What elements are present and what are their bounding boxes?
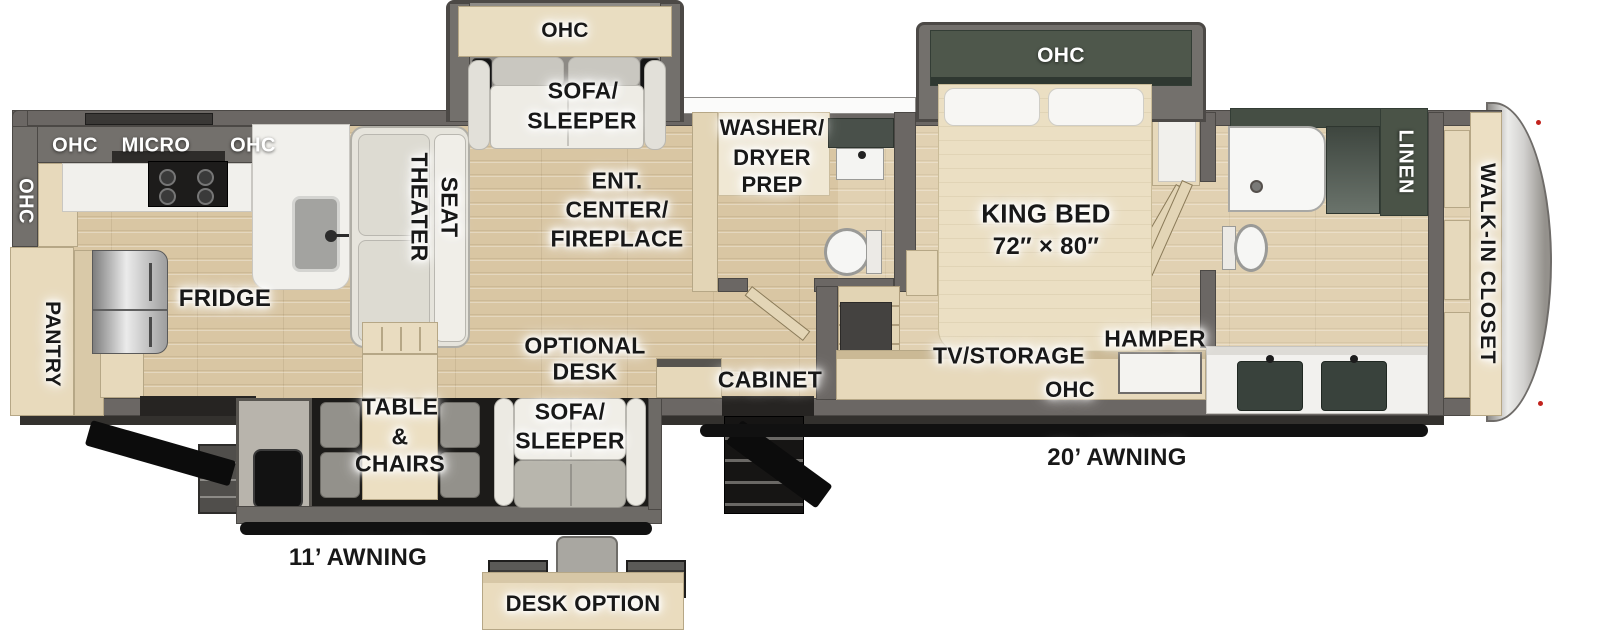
fridge-label: FRIDGE	[179, 285, 271, 313]
burner	[197, 188, 214, 205]
hutch-divider	[419, 327, 421, 351]
hamper	[1118, 352, 1202, 394]
living-sofa-label-line2: SLEEPER	[527, 108, 636, 135]
mid-toilet-tank	[866, 230, 882, 274]
burner	[197, 169, 214, 186]
bedroom-ohc-label: OHC	[1045, 377, 1095, 403]
sofa-armrest	[468, 60, 490, 150]
awning-11-bar	[240, 522, 652, 535]
bath-bottom-wall-left	[718, 278, 748, 292]
kitchen-ohc-right-label: OHC	[230, 135, 276, 158]
vanity-faucet	[1266, 355, 1274, 363]
sofa2-label-line2: SLEEPER	[515, 428, 624, 455]
closet-shelf	[1444, 130, 1470, 208]
sofa2-seat-divider	[570, 464, 572, 506]
dresser-top	[1158, 118, 1196, 182]
closet-shelf	[1444, 312, 1470, 398]
optional-desk-label-line1: OPTIONAL	[524, 333, 645, 360]
king-pillow	[1048, 88, 1144, 126]
bedroom-dresser	[1152, 112, 1200, 186]
kitchen-bottom-cabinet	[100, 352, 144, 398]
fridge-divider	[93, 309, 167, 311]
burner	[159, 188, 176, 205]
slide-window	[253, 449, 303, 509]
rear-ohc-label: OHC	[14, 178, 37, 224]
bath-faucet	[858, 151, 866, 159]
cooktop	[148, 161, 228, 207]
entry-cabinet	[656, 358, 722, 398]
living-sofa-label-line1: SOFA/	[548, 78, 619, 105]
bed-slide-ohc-label: OHC	[1037, 44, 1085, 68]
double-vanity	[1206, 346, 1428, 414]
vanity-top-lip	[1207, 347, 1427, 355]
desk-option-label: DESK OPTION	[506, 591, 661, 617]
kitchen-window	[85, 113, 213, 125]
cabinet-top-lip	[657, 359, 721, 367]
front-bath-wall-upper	[1200, 112, 1216, 182]
washer-dryer-label-line1: WASHER/	[720, 115, 825, 141]
tv-storage-label: TV/STORAGE	[933, 343, 1085, 370]
theater-backrest	[434, 134, 466, 342]
dinette-slide-endcap	[236, 398, 312, 512]
bath-left-cabinet	[692, 112, 718, 292]
desk-top-lip	[483, 573, 683, 583]
dinette-chair	[440, 402, 480, 448]
awning-20-label: 20’ AWNING	[1047, 444, 1186, 472]
ent-center-label-line1: ENT.	[591, 168, 642, 195]
kitchen-ohc-left-label: OHC	[52, 135, 98, 158]
king-pillow	[944, 88, 1040, 126]
nightstand	[906, 250, 938, 296]
hutch-divider	[400, 327, 402, 351]
sofa2-armrest	[494, 398, 514, 506]
shower-glass-panel	[1326, 126, 1380, 214]
marker-light-bottom	[1538, 401, 1543, 406]
shower-drain	[1250, 180, 1263, 193]
king-bed-label-line1: KING BED	[981, 199, 1111, 230]
drawer-top	[628, 562, 684, 570]
washer-dryer-label-line3: PREP	[741, 172, 802, 198]
sofa2-armrest	[626, 398, 646, 506]
hamper-label: HAMPER	[1104, 326, 1205, 353]
mid-toilet-bowl	[824, 228, 870, 276]
awning-11-label: 11’ AWNING	[289, 544, 427, 572]
theater-seat-label-line2: SEAT	[436, 177, 463, 238]
linen-label: LINEN	[1394, 130, 1417, 195]
vanity-faucet	[1350, 355, 1358, 363]
rv-floorplan-diagram: OHC OHC MICRO OHC PANTRY FRIDGE THEATER …	[0, 0, 1600, 632]
closet-shelf	[1444, 220, 1470, 300]
hutch-shelf-line	[363, 353, 437, 355]
sofa-armrest	[644, 60, 666, 150]
cabinet-label: CABINET	[718, 367, 822, 394]
washer-dryer-label-line2: DRYER	[733, 145, 811, 171]
fridge-handle	[149, 317, 152, 347]
kitchen-micro-label: MICRO	[122, 135, 191, 158]
table-chairs-label-line1: TABLE	[362, 394, 438, 421]
shower-pan	[1228, 126, 1326, 212]
awning-20-bar	[700, 424, 1428, 437]
walk-in-closet-label: WALK-IN CLOSET	[1475, 163, 1499, 365]
optional-desk-label-line2: DESK	[552, 359, 617, 386]
living-slide-ohc-label: OHC	[541, 19, 589, 43]
table-chairs-label-line2: &	[392, 424, 409, 451]
closet-divider-wall	[1428, 112, 1444, 416]
sofa2-label-line1: SOFA/	[535, 399, 606, 426]
vessel-sink-left	[1237, 361, 1303, 411]
dinette-hutch	[362, 322, 438, 398]
ent-center-label-line2: CENTER/	[565, 197, 668, 224]
hutch-divider	[381, 327, 383, 351]
theater-seat-label-line1: THEATER	[406, 152, 433, 261]
dinette-chair	[320, 452, 360, 498]
fridge-handle	[149, 263, 152, 301]
tv-cabinet	[840, 302, 892, 352]
marker-light-top	[1536, 120, 1541, 125]
step-tread	[725, 503, 803, 506]
pantry-label: PANTRY	[40, 301, 64, 387]
table-chairs-label-line3: CHAIRS	[355, 451, 445, 478]
kitchen-sink	[292, 196, 340, 272]
fridge	[92, 250, 168, 354]
bath-vanity-counter	[828, 118, 894, 148]
kitchen-faucet-spout	[335, 234, 349, 237]
bath-sink	[836, 148, 884, 180]
vessel-sink-right	[1321, 361, 1387, 411]
dinette-chair	[440, 452, 480, 498]
king-bed-label-line2: 72″ × 80″	[993, 233, 1099, 261]
drawer-top	[490, 562, 546, 570]
dinette-slide-right-wall	[648, 398, 662, 510]
main-entry-opening	[722, 396, 814, 416]
front-toilet-bowl	[1234, 224, 1268, 272]
burner	[159, 169, 176, 186]
ent-center-label-line3: FIREPLACE	[550, 226, 683, 253]
sofa2-seat	[514, 460, 626, 508]
dinette-chair	[320, 402, 360, 448]
